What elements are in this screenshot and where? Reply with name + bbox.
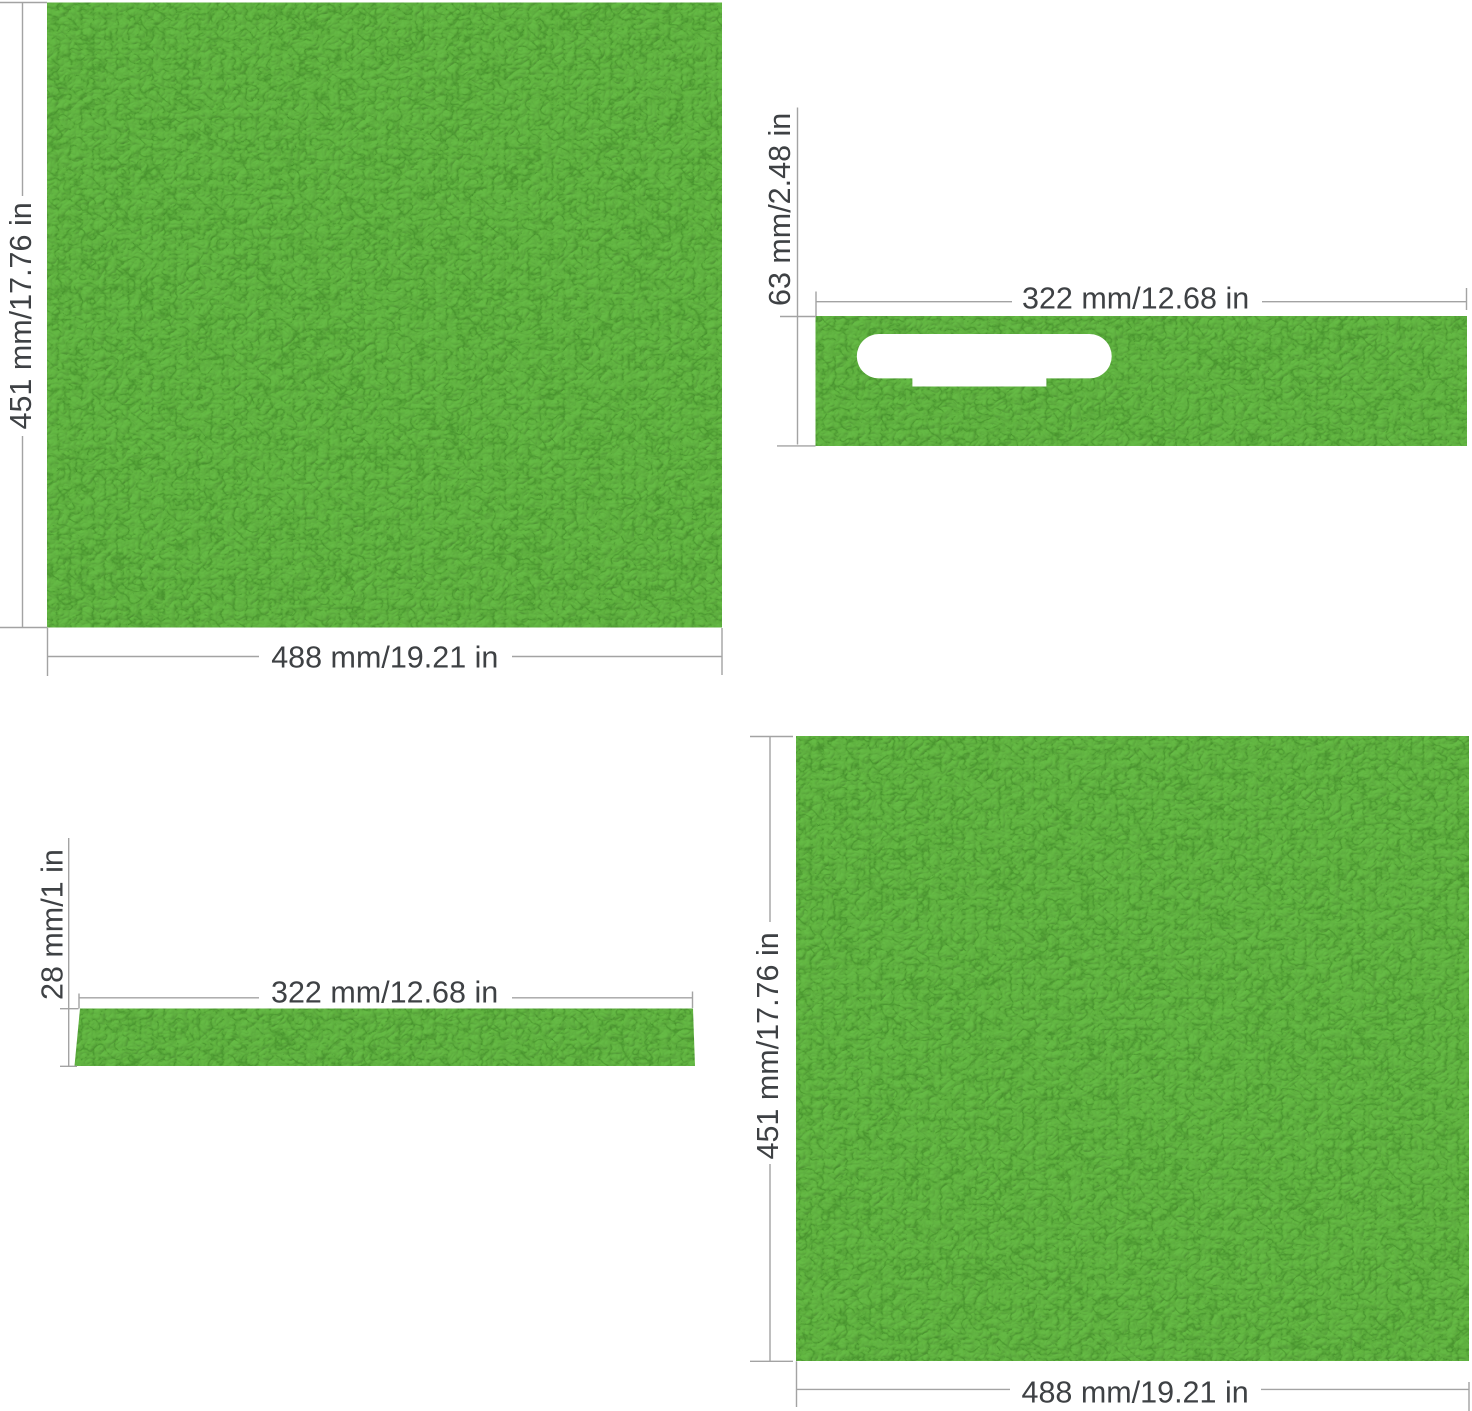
- svg-text:322 mm/12.68 in: 322 mm/12.68 in: [271, 976, 498, 1010]
- svg-text:451 mm/17.76 in: 451 mm/17.76 in: [751, 932, 785, 1159]
- svg-text:488 mm/19.21 in: 488 mm/19.21 in: [271, 641, 498, 675]
- svg-text:322 mm/12.68 in: 322 mm/12.68 in: [1022, 282, 1249, 316]
- svg-text:63 mm/2.48 in: 63 mm/2.48 in: [763, 113, 797, 306]
- svg-text:451 mm/17.76 in: 451 mm/17.76 in: [4, 202, 38, 429]
- svg-text:28 mm/1 in: 28 mm/1 in: [36, 849, 70, 1000]
- svg-text:488 mm/19.21 in: 488 mm/19.21 in: [1022, 1376, 1249, 1410]
